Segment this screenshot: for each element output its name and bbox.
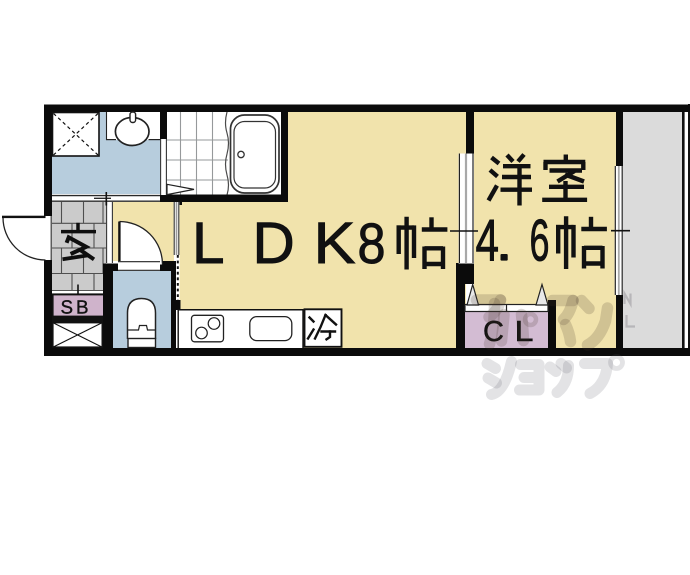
svg-text:8: 8 [358, 212, 386, 276]
svg-text:L: L [192, 211, 225, 276]
svg-text:4: 4 [476, 208, 500, 274]
svg-text:6: 6 [530, 208, 550, 274]
svg-text:D: D [253, 211, 295, 276]
svg-text:SB: SB [61, 298, 92, 319]
svg-text:K: K [314, 211, 356, 276]
